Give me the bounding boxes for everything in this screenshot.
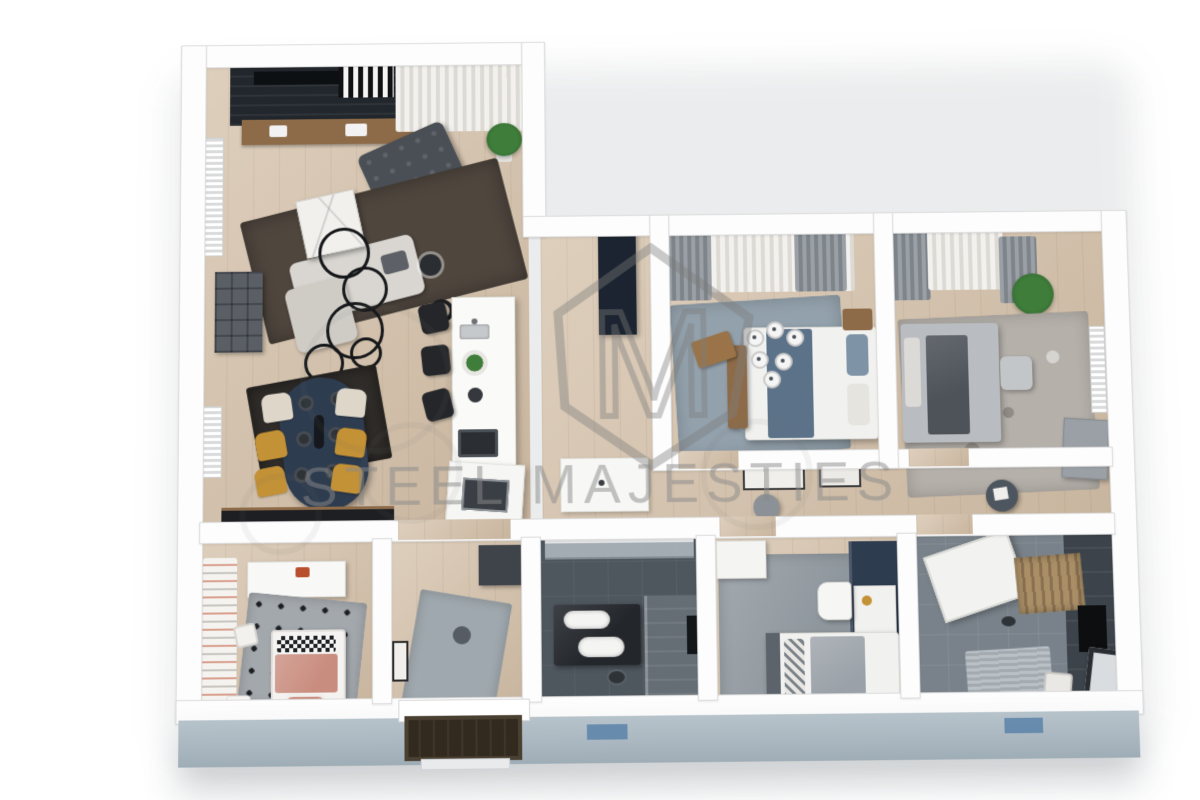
place-setting-3 (296, 431, 312, 447)
floorplan-render: M STEEL MAJESTIES (0, 0, 1200, 800)
logo-letter: M (589, 279, 717, 448)
watermark-text: STEEL MAJESTIES (0, 446, 1200, 523)
outer-wall-step (521, 42, 546, 238)
living-window-blinds (203, 138, 224, 257)
hallway-shoe-cabinet (479, 545, 521, 586)
ceiling-light-6 (763, 371, 781, 389)
wall-shelf-unit (215, 272, 263, 353)
hallway-stool (453, 626, 471, 644)
kids-dresser-toys (295, 567, 309, 577)
front-door (404, 715, 522, 761)
shower-screen (687, 616, 698, 655)
bedroom2-pillow (904, 338, 922, 407)
ceiling-light-3 (786, 329, 804, 347)
steel-majesties-logo: M (543, 241, 763, 472)
exterior-vent-2 (1004, 718, 1043, 734)
bedroom1-pillow-2 (847, 384, 870, 426)
kids-basket (233, 622, 259, 649)
inner-wall-kids-hallway (372, 538, 392, 704)
door-opening-bathroom2 (916, 514, 973, 535)
dining-chair-cream-1 (260, 392, 293, 424)
inner-wall-bedroom3-bathroom2 (896, 533, 920, 699)
vanity-sink-1 (564, 610, 611, 629)
inner-wall-hallway-bathroom1 (521, 537, 542, 703)
outer-wall-left (175, 45, 206, 722)
bedroom3-pillow-pattern (784, 639, 805, 702)
island-burner-1 (468, 388, 483, 403)
island-plant-bowl (462, 350, 488, 376)
console-decor-2 (345, 124, 367, 137)
ceiling-light-5 (775, 353, 793, 371)
bathroom1-sliding-glass-door (545, 539, 694, 560)
bedroom2-sheer-curtain (927, 225, 1004, 290)
console-decor (269, 125, 287, 137)
kids-pillow-checker (277, 636, 336, 653)
vanity-sink-2 (578, 637, 625, 658)
inner-wall-bathroom1-bedroom3 (696, 535, 719, 701)
exterior-wall-face (178, 710, 1140, 767)
bedroom3-chair (817, 582, 852, 621)
bedroom1-curtain-right (794, 228, 847, 291)
bedroom1-nightstand (842, 308, 872, 330)
kids-blanket-pink (275, 654, 338, 693)
side-table-lamp (420, 254, 442, 276)
bathroom2-drain (1001, 616, 1015, 626)
bedroom3-wardrobe (716, 540, 767, 579)
bedroom3-desk-items (862, 596, 872, 606)
ceiling-light-2 (766, 321, 784, 339)
bathroom2-wood-slats (1014, 553, 1086, 615)
front-door-step (421, 758, 510, 770)
bedroom2-pouf (1000, 356, 1033, 390)
bedroom1-pillow-1 (846, 334, 869, 376)
island-sink (460, 324, 490, 339)
living-curtains (396, 63, 526, 132)
bedroom2-throw (926, 335, 971, 434)
hallway-wall-frame (392, 641, 408, 682)
bedroom2-plant (1011, 273, 1054, 315)
building-3d-plan: M STEEL MAJESTIES (0, 5, 1200, 800)
outer-wall-top-left (181, 42, 545, 69)
living-plant (486, 123, 522, 156)
island-faucet (471, 318, 477, 324)
bathroom2-bath-mat (965, 646, 1053, 696)
bedroom2-curtain-left (889, 229, 930, 300)
bathroom2-tv-panel (1078, 605, 1108, 652)
kids-curtain (202, 558, 237, 702)
exterior-vent-1 (587, 724, 628, 740)
